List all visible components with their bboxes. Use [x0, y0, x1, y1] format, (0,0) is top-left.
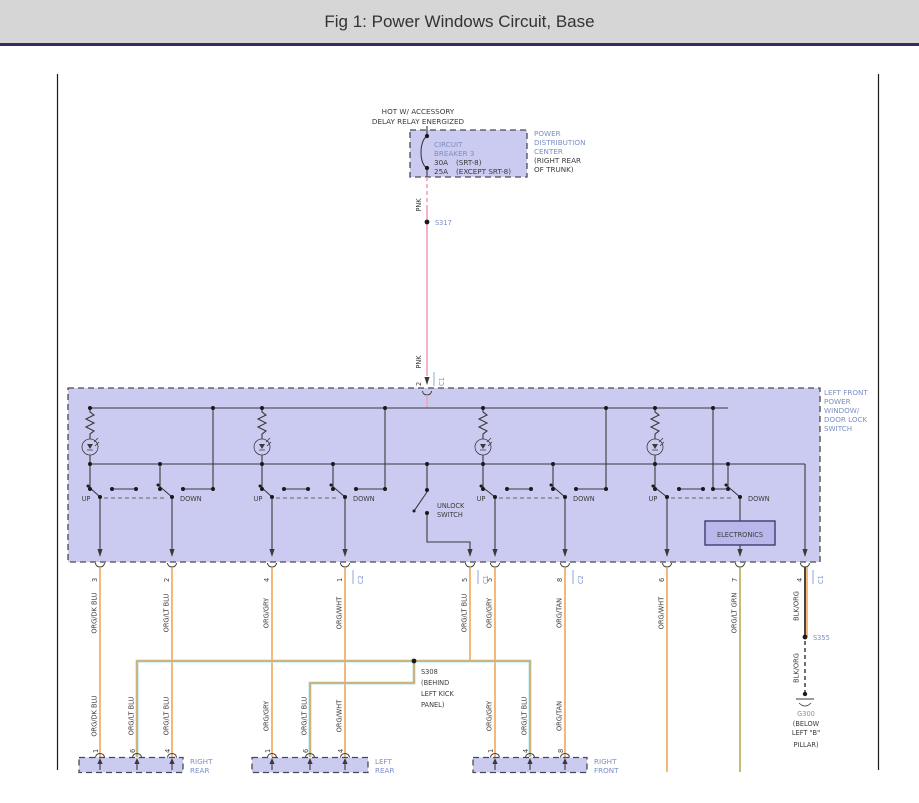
wire-color-label: ORG/DK BLU	[91, 592, 99, 633]
switch-block-name: SWITCH	[824, 424, 852, 433]
wire-color-label: ORG/LT BLU	[128, 696, 136, 735]
electronics-module: ELECTRONICS	[705, 521, 775, 545]
pin-number: 6	[302, 749, 310, 753]
pin-number: 5	[461, 578, 469, 582]
ground-location: PILLAR)	[793, 741, 818, 749]
wire-color-label: ORG/WHT	[336, 596, 344, 630]
block-name: LEFT	[375, 757, 393, 766]
splice-s317-dot	[425, 220, 430, 225]
block-name: RIGHT	[190, 757, 213, 766]
left-front-switch-block: UP DOWN UP DOWN UNLOCK SWITCH UP	[68, 388, 868, 567]
pin-number: 3	[91, 578, 99, 582]
up-label: UP	[649, 495, 658, 503]
down-label: DOWN	[180, 495, 202, 503]
connector-label: C1	[482, 575, 490, 584]
wire-color-label: ORG/GRY	[263, 700, 271, 731]
wire-color-label: ORG/WHT	[336, 699, 344, 733]
pdc-location: OF TRUNK)	[534, 165, 574, 174]
splice-s308-label: (BEHIND	[421, 679, 449, 687]
hot-label: DELAY RELAY ENERGIZED	[372, 117, 465, 126]
ground-symbol	[799, 703, 811, 706]
wire-color-label: BLK/ORG	[793, 653, 801, 683]
wire-color-label: ORG/DK BLU	[91, 695, 99, 736]
pin-number: 6	[658, 578, 666, 582]
pin-number: 4	[263, 578, 271, 582]
breaker-label: BREAKER 3	[434, 149, 475, 158]
pin-number: 2	[163, 578, 171, 582]
pdc-location: (RIGHT REAR	[534, 156, 581, 165]
pin-number: 1	[264, 749, 272, 753]
pdc-label: DISTRIBUTION	[534, 138, 585, 147]
hot-label: HOT W/ ACCESSORY	[382, 107, 455, 116]
breaker-rating-note: (EXCEPT SRT-8)	[456, 167, 511, 176]
right-rear-switch-block	[79, 758, 183, 773]
entry-arrow	[424, 377, 429, 385]
connector-pins-top: 3 2 4 1 5 5 8 6 7 4 C2 C1 C2 C1 ORG/DK B…	[91, 570, 826, 634]
wire-color-label: ORG/GRY	[486, 700, 494, 731]
pin-number: 1	[92, 749, 100, 753]
block-name: REAR	[375, 766, 394, 775]
wire-color-label: ORG/GRY	[263, 597, 271, 628]
switch-block-name: DOOR LOCK	[824, 415, 868, 424]
pdc-label: CENTER	[534, 147, 563, 156]
wire-color-label: ORG/LT BLU	[163, 696, 171, 735]
electronics-label: ELECTRONICS	[717, 531, 763, 539]
down-label: DOWN	[353, 495, 375, 503]
wire-color-label: ORG/WHT	[658, 596, 666, 630]
pin-number: 4	[164, 749, 172, 753]
branch-wires: S308 (BEHIND LEFT KICK PANEL) ORG/DK BLU…	[91, 567, 741, 772]
wire-color-label: PNK	[415, 198, 423, 212]
breaker-rating-note: (SRT-8)	[456, 158, 482, 167]
wire-color-label: ORG/LT GRN	[731, 593, 739, 634]
pin-number: 4	[796, 578, 804, 582]
connector-label: C2	[357, 575, 365, 584]
breaker-rating: 30A	[434, 158, 448, 167]
pin-number: 4	[522, 749, 530, 753]
block-name: REAR	[190, 766, 209, 775]
wire-color-label: ORG/LT BLU	[301, 696, 309, 735]
block-name: RIGHT	[594, 757, 617, 766]
wire-color-label: ORG/GRY	[486, 597, 494, 628]
up-label: UP	[477, 495, 486, 503]
wire-color-label: ORG/LT BLU	[461, 593, 469, 632]
pin-number: 8	[557, 749, 565, 753]
connector-label: C1	[438, 377, 446, 386]
down-label: DOWN	[573, 495, 595, 503]
up-label: UP	[82, 495, 91, 503]
wire-color-label: PNK	[415, 355, 423, 369]
switch-block-name: POWER	[824, 397, 851, 406]
ground-label: G300	[797, 710, 815, 718]
splice-s308-dot	[412, 659, 417, 664]
pin-number: 6	[129, 749, 137, 753]
unlock-switch-label: UNLOCK	[437, 502, 465, 510]
down-label: DOWN	[748, 495, 770, 503]
splice-s308-label: S308	[421, 668, 438, 676]
wire-color-label: ORG/LT BLU	[163, 593, 171, 632]
splice-s308-label: LEFT KICK	[421, 690, 455, 698]
splice-s317-label: S317	[435, 219, 452, 227]
connector-label: C1	[817, 575, 825, 584]
wiring-diagram-canvas: HOT W/ ACCESSORY DELAY RELAY ENERGIZED C…	[0, 0, 919, 803]
pin-number: 2	[415, 382, 423, 386]
splice-s355-dot	[803, 635, 808, 640]
breaker-rating: 25A	[434, 167, 448, 176]
splice-s355-label: S355	[813, 634, 830, 642]
pdc-label: POWER	[534, 129, 561, 138]
ground-location: LEFT "B"	[792, 729, 820, 737]
wire-color-label: BLK/ORG	[793, 591, 801, 621]
pin-number: 7	[731, 578, 739, 582]
viewport-cutoff	[0, 775, 919, 803]
s308-net-stripe	[137, 661, 530, 757]
bottom-switch-connectors: 1 6 4 1 6 4 1 4 8 RIGHT REAR LEFT REAR R…	[79, 749, 619, 775]
power-distribution-center: HOT W/ ACCESSORY DELAY RELAY ENERGIZED C…	[372, 107, 586, 177]
connector-label: C2	[577, 575, 585, 584]
up-label: UP	[254, 495, 263, 503]
pin-number: 4	[337, 749, 345, 753]
switch-block-name: LEFT FRONT	[824, 388, 868, 397]
wire-color-label: ORG/LT BLU	[521, 696, 529, 735]
wire-color-label: ORG/TAN	[556, 701, 564, 731]
ground-location: (BELOW	[793, 720, 820, 728]
switch-block-name: WINDOW/	[824, 406, 860, 415]
block-name: FRONT	[594, 766, 619, 775]
splice-s308-label: PANEL)	[421, 701, 444, 709]
wire-color-label: ORG/TAN	[556, 598, 564, 628]
breaker-label: CIRCUIT	[434, 140, 463, 149]
pin-number: 8	[556, 578, 564, 582]
s308-net	[137, 661, 530, 757]
pin-number: 1	[336, 578, 344, 582]
unlock-switch-label: SWITCH	[437, 511, 463, 519]
pin-number: 1	[487, 749, 495, 753]
feed-wire-pnk: PNK S317 PNK 2 C1	[415, 177, 452, 386]
